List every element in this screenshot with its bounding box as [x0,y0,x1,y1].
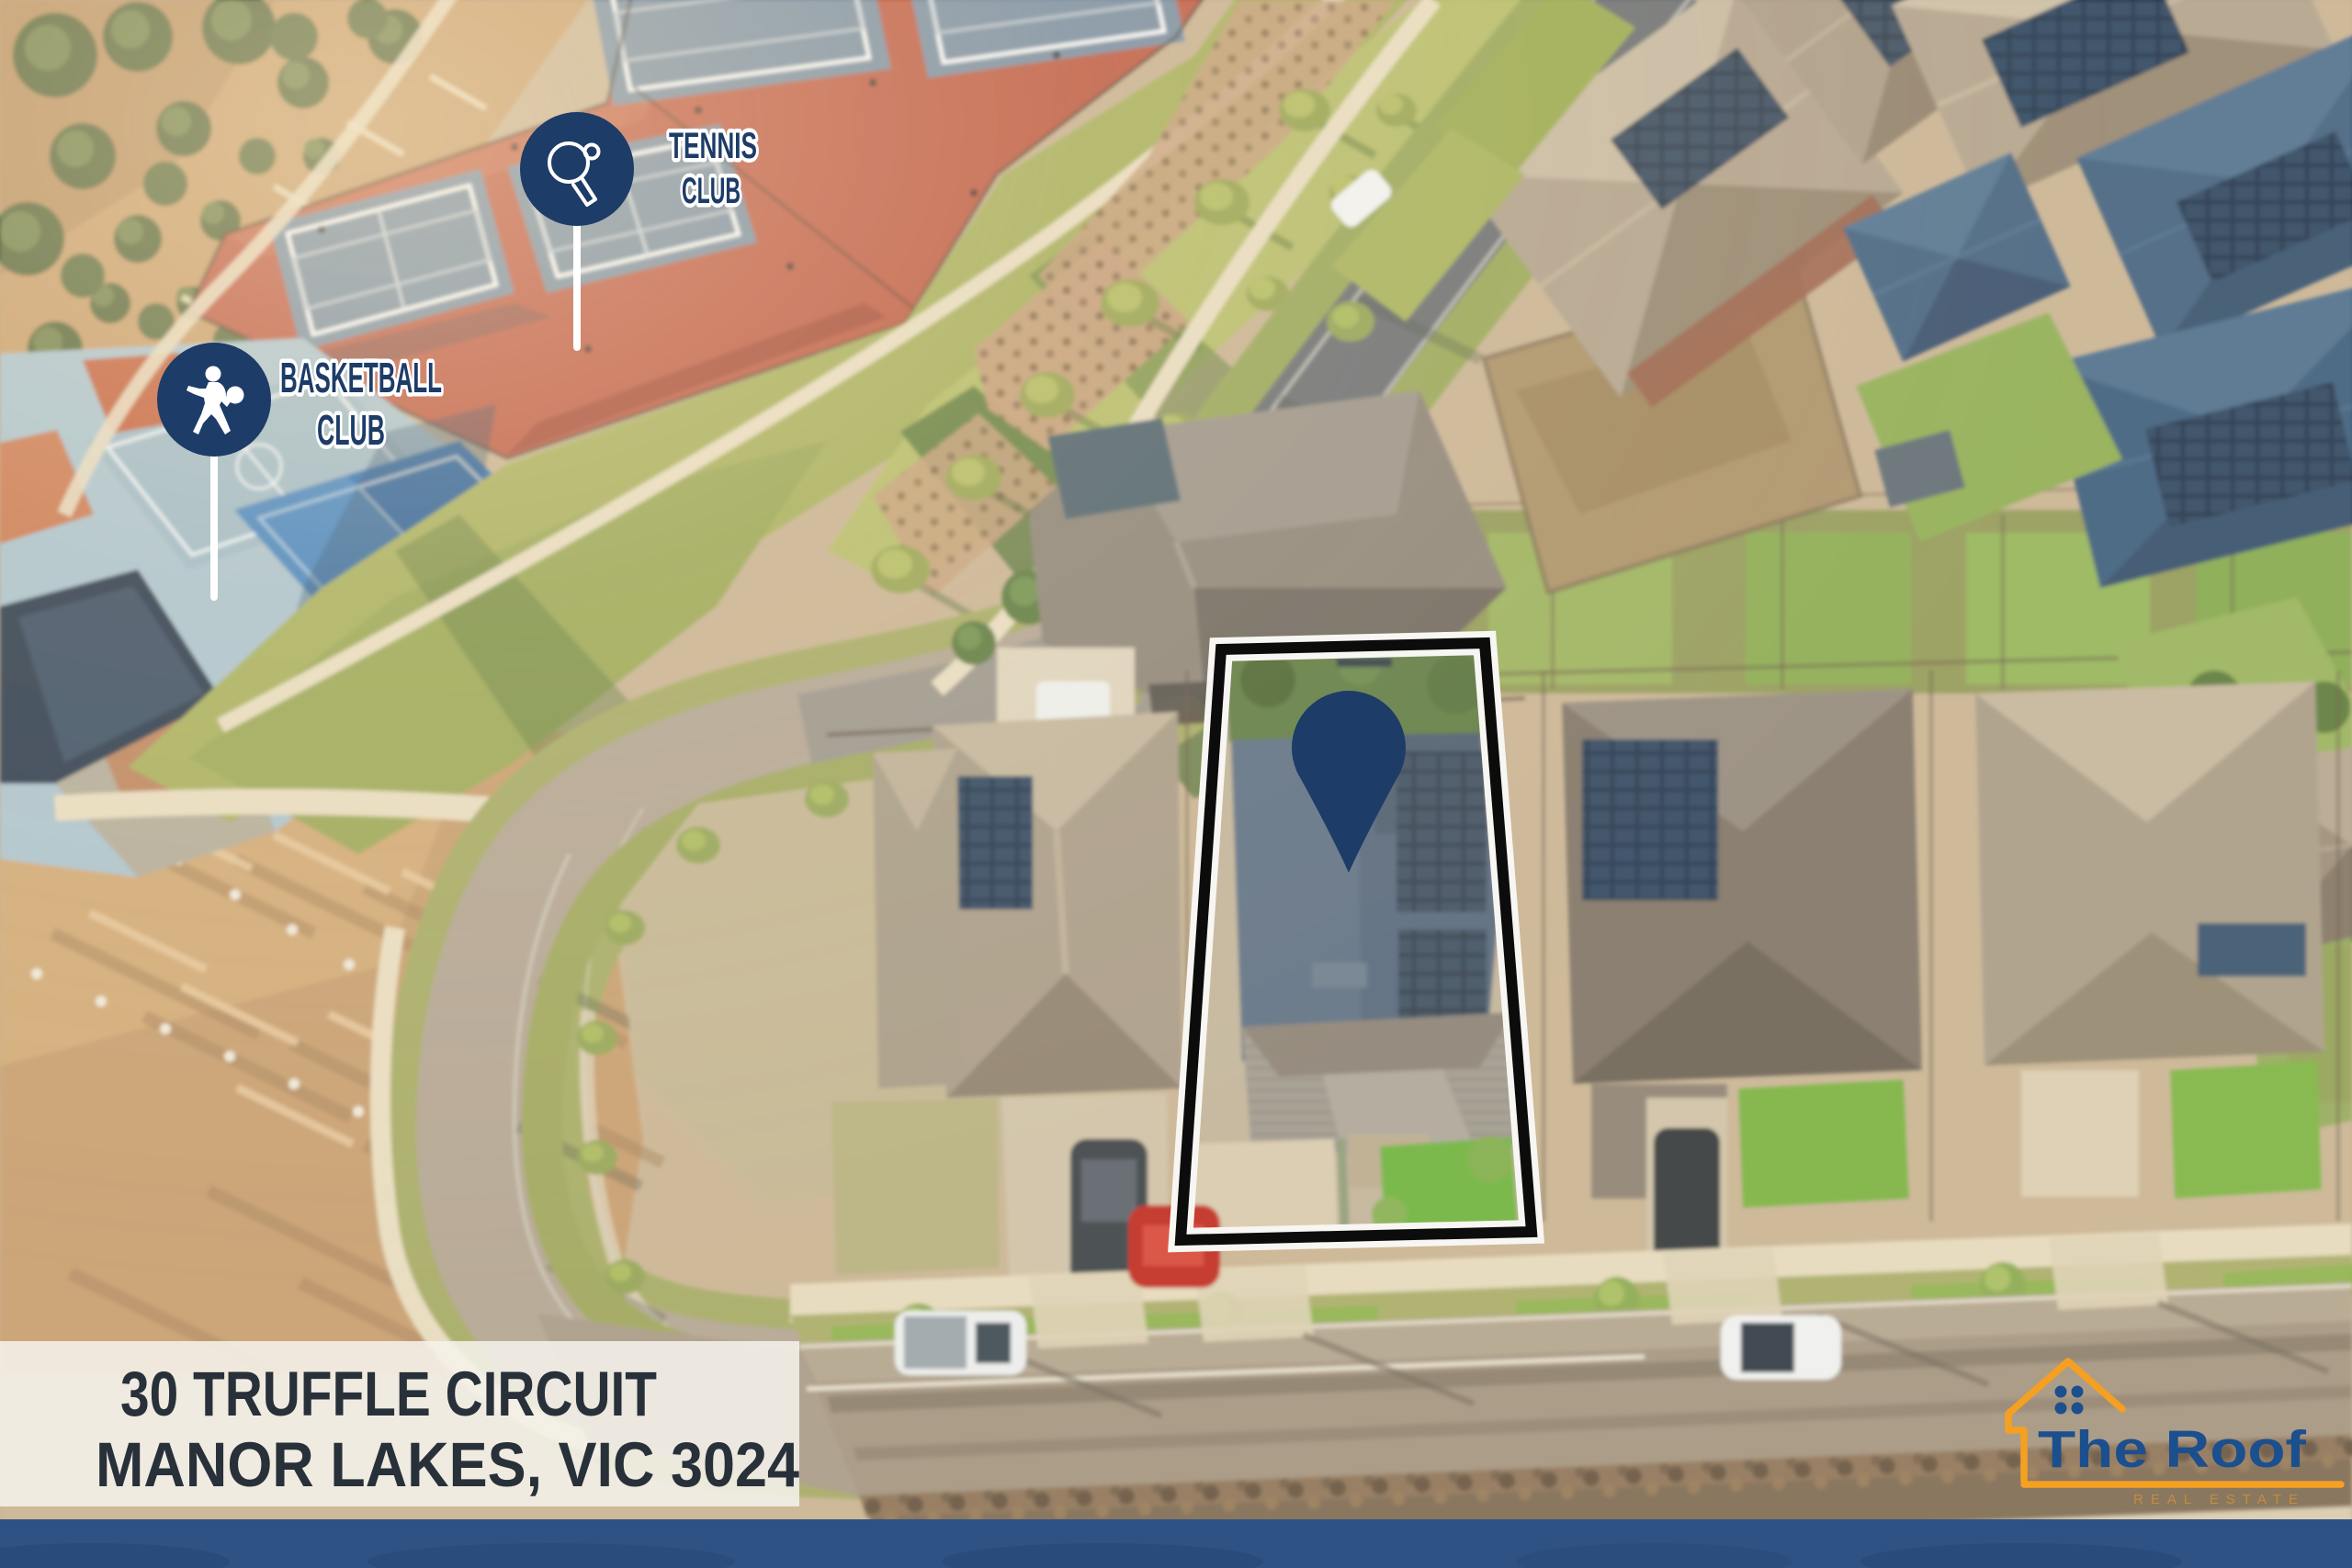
svg-text:BASKETBALL: BASKETBALL [280,354,442,401]
svg-text:CLUB: CLUB [317,406,385,454]
svg-text:30 TRUFFLE CIRCUIT: 30 TRUFFLE CIRCUIT [120,1359,657,1429]
svg-text:The Roof: The Roof [2038,1420,2307,1479]
svg-text:REAL ESTATE: REAL ESTATE [2133,1492,2305,1507]
svg-text:MANOR LAKES, VIC 3024: MANOR LAKES, VIC 3024 [96,1429,799,1500]
svg-text:CLUB: CLUB [682,171,741,211]
svg-text:TENNIS: TENNIS [669,126,757,166]
